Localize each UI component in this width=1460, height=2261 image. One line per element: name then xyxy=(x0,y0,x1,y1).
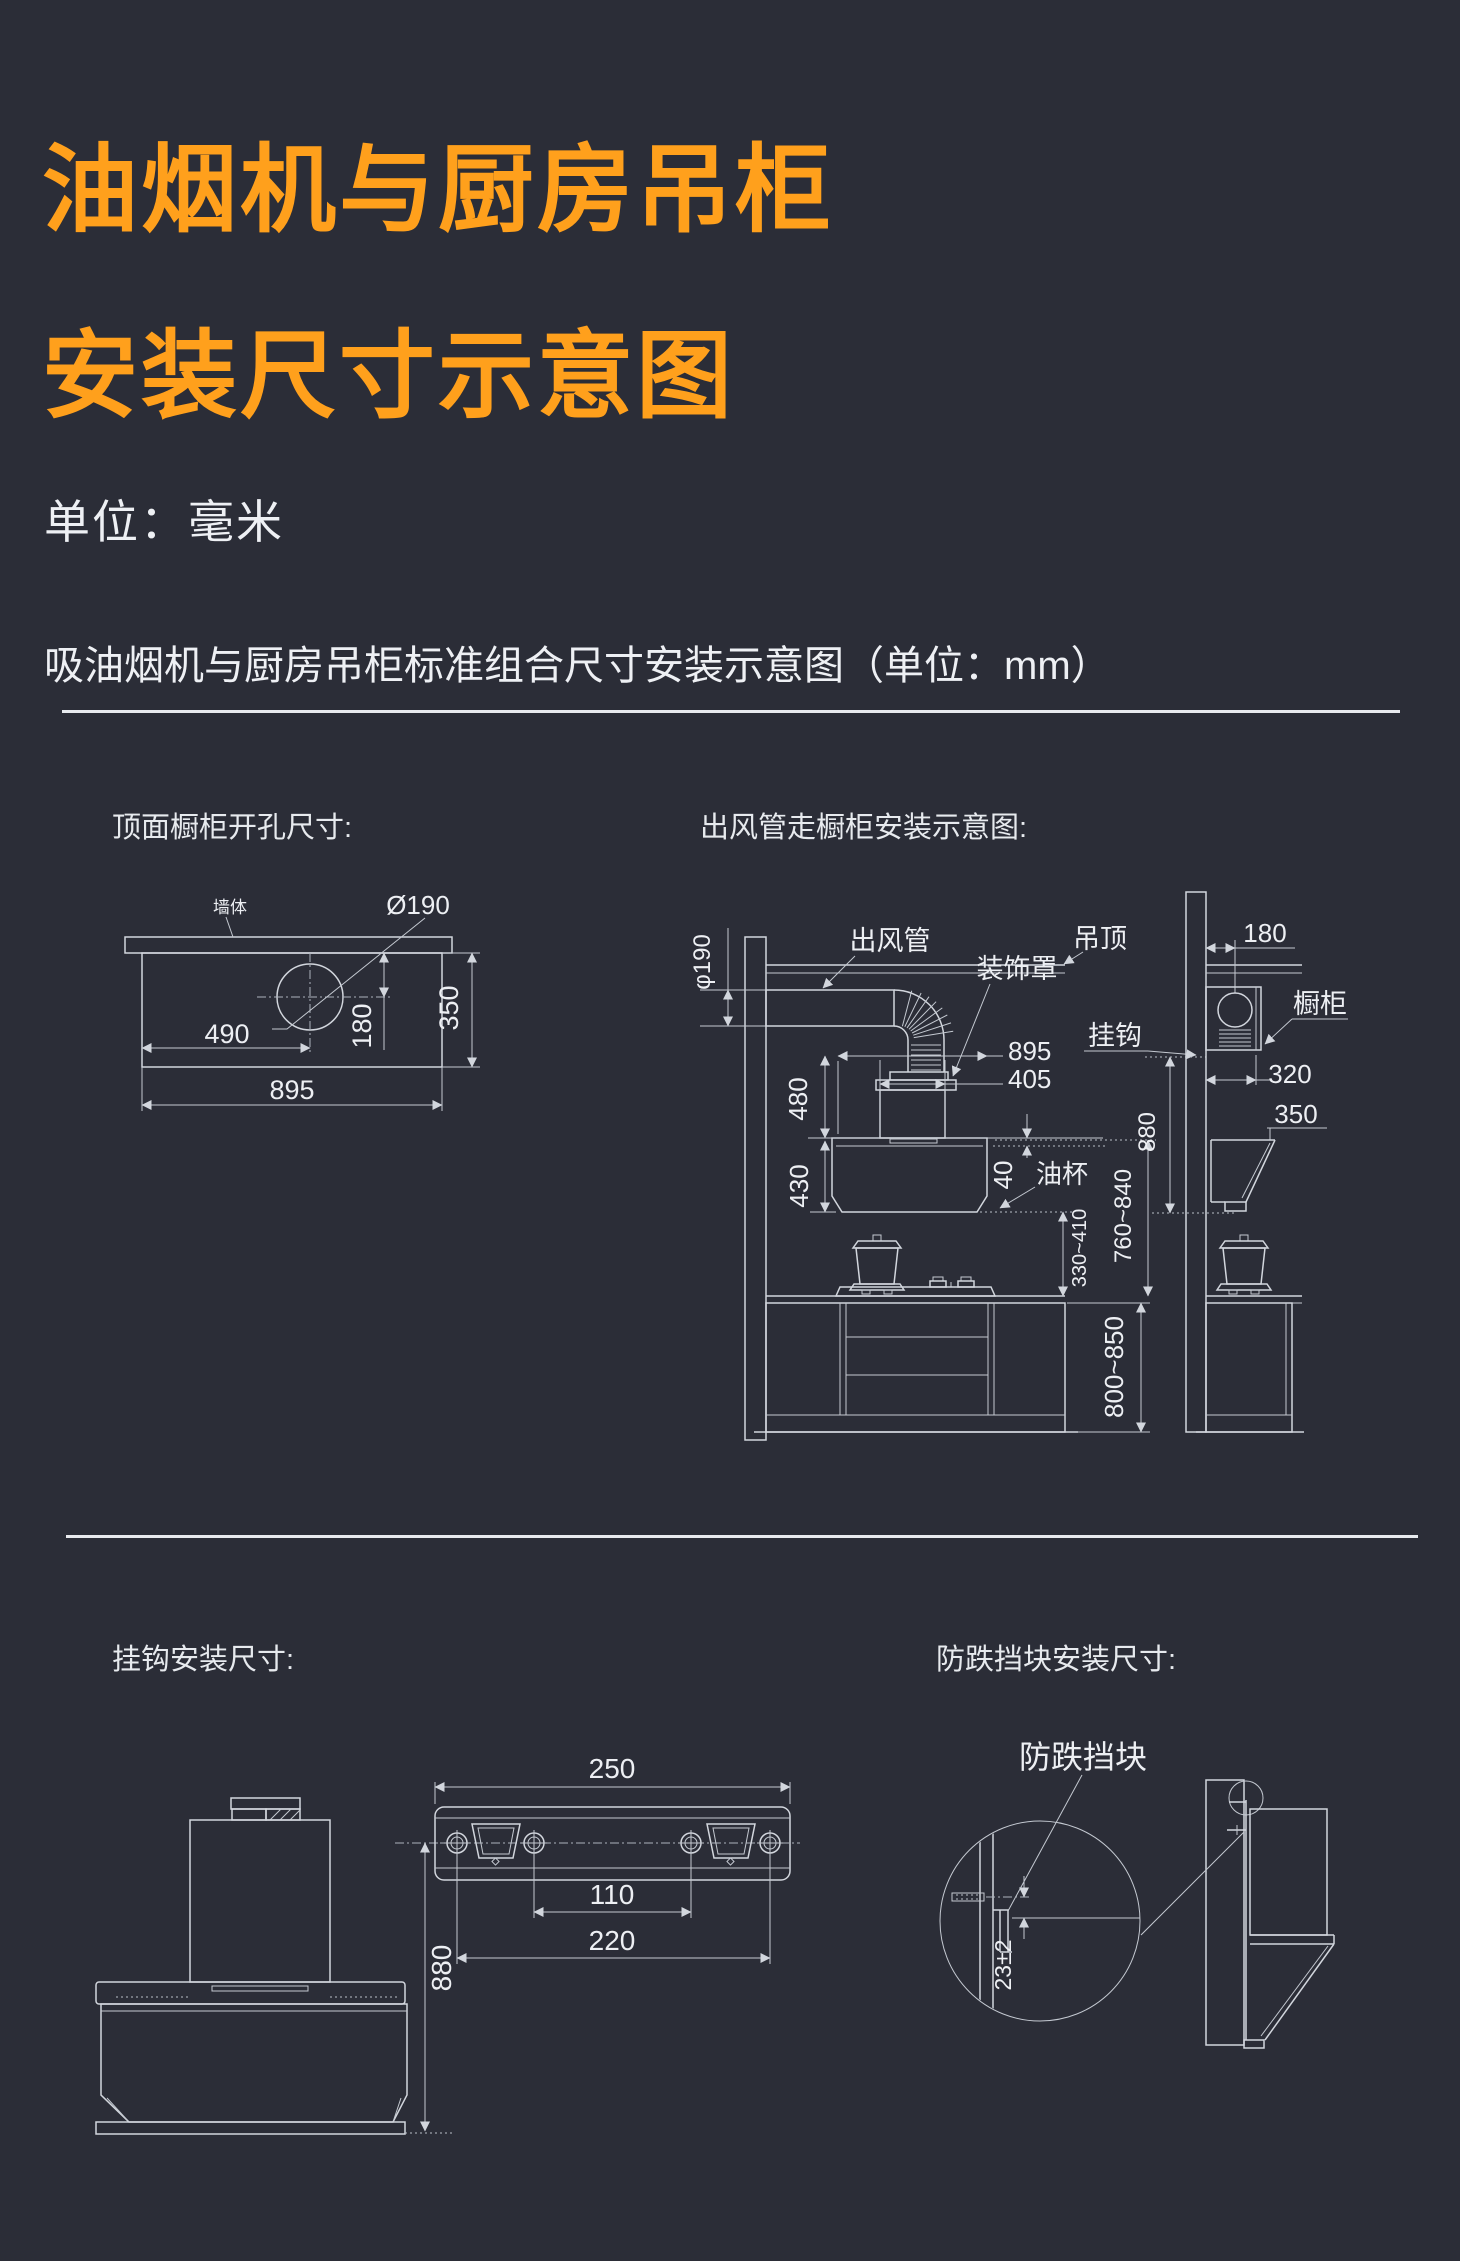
svg-text:330~410: 330~410 xyxy=(1069,1209,1091,1287)
duct-view-drawing: φ190 出风管 xyxy=(690,880,1460,1472)
svg-text:挂钩: 挂钩 xyxy=(1088,1021,1142,1051)
cooktop-side xyxy=(1217,1235,1271,1294)
dim-wall-clearance: 180 xyxy=(1206,918,1295,993)
hook-view-heading: 挂钩安装尺寸: xyxy=(112,1636,294,1678)
dim-490: 490 xyxy=(142,1019,310,1049)
poster-canvas: 油烟机与厨房吊柜 安装尺寸示意图 单位：毫米 吸油烟机与厨房吊柜标准组合尺寸安装… xyxy=(0,0,1460,2261)
dim-hood-depth: 350 xyxy=(1267,1099,1327,1140)
hook-slot-2 xyxy=(707,1824,755,1865)
hook-slot-1 xyxy=(472,1824,520,1865)
svg-text:出风管: 出风管 xyxy=(850,926,931,956)
side-ceiling xyxy=(1206,965,1302,973)
svg-text:180: 180 xyxy=(1243,918,1286,948)
section-title: 吸油烟机与厨房吊柜标准组合尺寸安装示意图（单位：mm） xyxy=(44,633,1111,691)
hole-dia-label: Ø190 xyxy=(386,890,450,920)
duct-view-heading: 出风管走橱柜安装示意图: xyxy=(700,804,1027,846)
cabinet-top-outline xyxy=(142,918,442,1067)
unit-note: 单位：毫米 xyxy=(44,486,284,552)
page-title-line1: 油烟机与厨房吊柜 xyxy=(42,112,834,251)
dim-cover-height: 480 xyxy=(783,1056,825,1138)
front-wall xyxy=(745,937,766,1440)
side-cabinet xyxy=(1206,987,1261,1050)
label-hook: 挂钩 xyxy=(1084,1021,1196,1055)
dim-outer-holes: 220 xyxy=(457,1856,770,1964)
dim-offset: 23±2 xyxy=(990,1876,1024,1991)
top-view-drawing: 墙体 Ø190 490 180 350 xyxy=(80,860,500,1130)
wall-section xyxy=(980,1815,993,2027)
dim-duct-dia: φ190 xyxy=(689,928,766,1026)
block-view-heading: 防跌挡块安装尺寸: xyxy=(936,1636,1176,1678)
label-duct: 出风管 xyxy=(823,926,931,988)
hood-profile xyxy=(96,1798,452,2134)
svg-text:油杯: 油杯 xyxy=(1036,1159,1088,1189)
dim-hood-height: 430 xyxy=(784,1138,836,1212)
wall-label: 墙体 xyxy=(213,898,247,917)
block-view-drawing: 防跌挡块 23±2 xyxy=(900,1720,1400,2100)
hook-view-drawing: 880 xyxy=(60,1740,820,2170)
svg-text:23±2: 23±2 xyxy=(990,1940,1016,1991)
hood-side-small xyxy=(1141,1780,1334,2048)
detail-circle: 23±2 xyxy=(940,1815,1140,2027)
hood-side xyxy=(1211,1140,1275,1211)
svg-text:895: 895 xyxy=(269,1075,314,1105)
dim-180: 180 xyxy=(347,953,384,1050)
dim-895: 895 xyxy=(142,1067,442,1111)
exhaust-duct xyxy=(766,990,953,1072)
divider-top xyxy=(62,710,1400,713)
dim-inner-holes: 110 xyxy=(534,1856,691,1918)
svg-text:350: 350 xyxy=(1274,1099,1317,1129)
svg-text:φ190: φ190 xyxy=(689,934,716,990)
svg-text:490: 490 xyxy=(204,1019,249,1049)
svg-text:405: 405 xyxy=(1008,1064,1051,1094)
dim-cabinet-depth: 320 xyxy=(1206,1055,1312,1089)
side-wall xyxy=(1186,892,1206,1432)
counter-and-cabinet-side xyxy=(1196,1296,1304,1432)
svg-text:800~850: 800~850 xyxy=(1099,1316,1129,1418)
svg-text:40: 40 xyxy=(988,1161,1018,1190)
label-ceiling: 吊顶 xyxy=(1064,924,1127,964)
svg-text:430: 430 xyxy=(784,1164,814,1207)
svg-text:760~840: 760~840 xyxy=(1110,1169,1137,1263)
svg-text:橱柜: 橱柜 xyxy=(1293,989,1347,1019)
bracket-hole-2 xyxy=(521,1830,547,1856)
svg-text:180: 180 xyxy=(347,1003,377,1048)
duct-section-circle xyxy=(1218,993,1252,1027)
dim-oil-cup-gap: 40 xyxy=(988,1114,1027,1189)
bracket-hole-1 xyxy=(444,1830,470,1856)
detail-leader xyxy=(1141,1832,1244,1935)
svg-text:895: 895 xyxy=(1008,1036,1051,1066)
svg-text:480: 480 xyxy=(783,1077,813,1120)
dim-counter-height: 800~850 xyxy=(1067,1303,1150,1432)
bracket-hole-3 xyxy=(678,1830,704,1856)
dim-350: 350 xyxy=(434,953,480,1067)
divider-bottom xyxy=(66,1535,1418,1538)
hanger-bracket xyxy=(435,1807,800,1880)
dim-bracket-width: 250 xyxy=(435,1753,790,1804)
label-cabinet: 橱柜 xyxy=(1265,989,1348,1044)
svg-text:防跌挡块: 防跌挡块 xyxy=(1019,1739,1147,1775)
cooktop-front xyxy=(836,1235,995,1296)
svg-text:880: 880 xyxy=(426,1945,457,1992)
svg-text:220: 220 xyxy=(589,1925,636,1956)
svg-text:装饰罩: 装饰罩 xyxy=(977,954,1058,984)
page-title-line2: 安装尺寸示意图 xyxy=(42,298,735,437)
decorative-cover xyxy=(876,1072,956,1138)
svg-text:880: 880 xyxy=(1134,1112,1161,1152)
svg-text:110: 110 xyxy=(590,1879,635,1910)
svg-text:吊顶: 吊顶 xyxy=(1073,924,1127,954)
svg-text:320: 320 xyxy=(1268,1059,1311,1089)
block-label: 防跌挡块 xyxy=(1008,1739,1147,1911)
top-view-heading: 顶面橱柜开孔尺寸: xyxy=(112,804,352,846)
bracket-hole-4 xyxy=(757,1830,783,1856)
anchor-screw xyxy=(952,1893,1030,1901)
counter-and-cabinet-front xyxy=(754,1296,1078,1432)
dim-hood-to-counter: 330~410 xyxy=(1063,1209,1091,1296)
svg-text:250: 250 xyxy=(589,1753,636,1784)
svg-text:350: 350 xyxy=(434,985,464,1030)
